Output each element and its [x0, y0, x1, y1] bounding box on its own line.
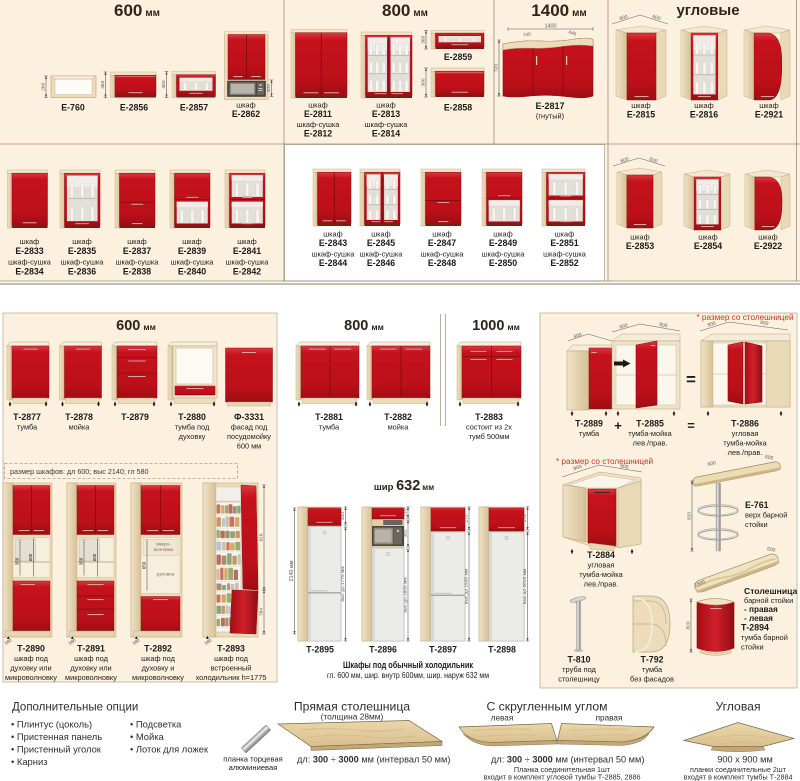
- svg-text:тумба: тумба: [319, 423, 340, 432]
- svg-text:лев./прав.: лев./прав.: [584, 580, 619, 589]
- svg-text:духовка: духовка: [157, 573, 175, 578]
- svg-text:Угловая: Угловая: [715, 700, 760, 714]
- svg-text:• Карниз: • Карниз: [11, 756, 48, 767]
- svg-text:шкаф под: шкаф под: [74, 654, 109, 663]
- svg-text:Е-2817: Е-2817: [535, 101, 564, 111]
- svg-text:С скругленным углом: С скругленным углом: [486, 700, 607, 714]
- svg-text:шкаф-сушка: шкаф-сушка: [116, 258, 160, 267]
- svg-text:Е-2847: Е-2847: [428, 238, 456, 248]
- svg-text:Т-2889: Т-2889: [575, 419, 603, 429]
- svg-text:Т-2898: Т-2898: [488, 645, 516, 655]
- svg-text:тумба-мойка: тумба-мойка: [579, 570, 623, 579]
- svg-text:Т-2894: Т-2894: [741, 623, 769, 633]
- svg-text:Е-2922: Е-2922: [754, 241, 782, 251]
- svg-text:шкаф-сушка: шкаф-сушка: [61, 258, 105, 267]
- svg-text:тумба под: тумба под: [175, 423, 210, 432]
- svg-text:Е-2843: Е-2843: [319, 238, 347, 248]
- svg-text:2140 мм: 2140 мм: [289, 560, 295, 581]
- svg-text:Е-2839: Е-2839: [178, 246, 206, 256]
- svg-text:(толщина 28мм): (толщина 28мм): [321, 712, 384, 722]
- svg-text:- правая: - правая: [744, 605, 778, 614]
- svg-text:стойки: стойки: [741, 643, 764, 652]
- svg-text:шкаф: шкаф: [237, 237, 257, 246]
- svg-text:Т-2892: Т-2892: [144, 644, 172, 654]
- svg-text:тумба: тумба: [17, 423, 38, 432]
- svg-text:микро-: микро-: [156, 542, 171, 547]
- svg-text:Е-2834: Е-2834: [15, 267, 43, 277]
- svg-text:600: 600: [92, 553, 97, 561]
- svg-text:Е-761: Е-761: [745, 500, 769, 510]
- svg-text:без фасадов: без фасадов: [630, 675, 674, 684]
- svg-text:Е-2840: Е-2840: [178, 267, 206, 277]
- svg-text:столешницу: столешницу: [558, 675, 600, 684]
- svg-text:Е-760: Е-760: [61, 103, 85, 113]
- svg-text:350: 350: [15, 557, 20, 565]
- svg-text:шкаф: шкаф: [182, 237, 202, 246]
- svg-text:Е-2921: Е-2921: [755, 110, 783, 120]
- svg-text:• Пристенный уголок: • Пристенный уголок: [11, 744, 102, 755]
- svg-text:шкаф: шкаф: [72, 237, 92, 246]
- svg-text:Т-2893: Т-2893: [217, 644, 245, 654]
- svg-text:Е-2845: Е-2845: [367, 238, 395, 248]
- svg-text:360: 360: [421, 35, 427, 43]
- svg-text:Е-2857: Е-2857: [180, 103, 208, 113]
- svg-text:стойки: стойки: [745, 520, 768, 529]
- svg-text:угловая: угловая: [588, 561, 615, 570]
- svg-text:600: 600: [28, 553, 33, 561]
- svg-text:360: 360: [161, 80, 167, 88]
- svg-text:правая: правая: [596, 714, 623, 723]
- svg-text:входит в комплект угловой тумб: входит в комплект угловой тумбы Т-2885, …: [483, 773, 640, 781]
- svg-text:Ф-3331: Ф-3331: [234, 412, 264, 422]
- svg-text:650: 650: [142, 561, 147, 569]
- svg-text:духовку или: духовку или: [70, 664, 111, 673]
- svg-text:мойка: мойка: [388, 423, 410, 432]
- svg-text:Т-810: Т-810: [568, 655, 591, 665]
- svg-text:900 х 900 мм: 900 х 900 мм: [717, 755, 773, 765]
- svg-text:Е-2835: Е-2835: [68, 246, 96, 256]
- svg-text:916: 916: [259, 533, 265, 541]
- svg-text:Т-2881: Т-2881: [315, 412, 343, 422]
- svg-text:Т-2877: Т-2877: [13, 412, 41, 422]
- svg-text:микроволновку: микроволновку: [132, 673, 184, 682]
- svg-text:тумба барной: тумба барной: [741, 633, 788, 642]
- svg-text:тумба-мойка: тумба-мойка: [628, 429, 672, 438]
- svg-text:духовку и: духовку и: [142, 664, 175, 673]
- svg-text:Т-2885: Т-2885: [636, 419, 664, 429]
- svg-text:360: 360: [100, 80, 106, 88]
- svg-text:тумба-мойка: тумба-мойка: [723, 439, 767, 448]
- svg-text:выс до 1830 мм: выс до 1830 мм: [403, 577, 409, 612]
- svg-text:Дополнительные опции: Дополнительные опции: [12, 702, 138, 714]
- svg-text:Е-2833: Е-2833: [15, 246, 43, 256]
- svg-text:Е-2853: Е-2853: [626, 241, 654, 251]
- svg-text:духовку: духовку: [179, 432, 206, 441]
- svg-text:Е-2846: Е-2846: [367, 258, 395, 268]
- svg-text:Т-2896: Т-2896: [369, 645, 397, 655]
- svg-text:шкаф под: шкаф под: [214, 654, 249, 663]
- svg-text:фасад под: фасад под: [231, 423, 268, 432]
- svg-text:170: 170: [522, 514, 528, 522]
- svg-text:350: 350: [79, 557, 84, 565]
- svg-text:Шкафы под обычный холодильник: Шкафы под обычный холодильник: [343, 660, 473, 671]
- svg-text:Е-2838: Е-2838: [123, 267, 151, 277]
- svg-text:входят в комплект тумбы Т-2884: входят в комплект тумбы Т-2884: [684, 773, 793, 781]
- svg-text:720: 720: [494, 64, 500, 72]
- svg-text:920: 920: [687, 512, 693, 520]
- svg-text:Е-2859: Е-2859: [444, 52, 472, 62]
- svg-text:лев./прав.: лев./прав.: [633, 439, 668, 448]
- svg-text:600 мм: 600 мм: [237, 442, 262, 451]
- svg-text:тумба: тумба: [642, 665, 663, 674]
- svg-text:гл. 600 мм, шир. внутр 600м: гл. 600 мм, шир. внутр 600мм, шир. наруж…: [327, 671, 489, 680]
- svg-text:Е-2816: Е-2816: [690, 110, 718, 120]
- svg-text:Е-2841: Е-2841: [233, 246, 261, 256]
- svg-text:=: =: [687, 418, 695, 433]
- svg-text:Е-2842: Е-2842: [233, 267, 261, 277]
- svg-text:Е-2811: Е-2811: [304, 109, 332, 119]
- svg-text:+: +: [614, 418, 622, 433]
- svg-text:Т-2883: Т-2883: [475, 412, 503, 422]
- svg-text:левая: левая: [491, 714, 514, 723]
- svg-text:Е-2854: Е-2854: [694, 241, 722, 251]
- svg-text:Е-2856: Е-2856: [120, 103, 148, 113]
- svg-text:выс до 1775 мм: выс до 1775 мм: [340, 566, 346, 601]
- svg-text:тумба: тумба: [579, 429, 600, 438]
- svg-text:(гнутый): (гнутый): [536, 112, 564, 121]
- svg-text:• Плинтус (цоколь): • Плинтус (цоколь): [11, 719, 92, 730]
- svg-text:встроенный: встроенный: [211, 664, 252, 673]
- svg-text:Е-2852: Е-2852: [550, 258, 578, 268]
- svg-text:Е-2849: Е-2849: [489, 238, 517, 248]
- svg-text:труба под: труба под: [562, 665, 596, 674]
- svg-text:Т-2897: Т-2897: [429, 645, 457, 655]
- svg-text:холодильник h=1775: холодильник h=1775: [196, 673, 267, 682]
- svg-text:Т-2879: Т-2879: [121, 412, 149, 422]
- svg-text:Е-2848: Е-2848: [428, 258, 456, 268]
- svg-text:размер шкафов: дл 600; выс 2: размер шкафов: дл 600; выс 2140; гл 580: [10, 467, 149, 476]
- svg-text:дл: 300 ÷ 3000 мм (интервал 50: дл: 300 ÷ 3000 мм (интервал 50 мм): [297, 755, 450, 765]
- svg-text:740: 740: [522, 31, 531, 38]
- svg-text:шкаф под: шкаф под: [141, 654, 176, 663]
- svg-text:посудомойку: посудомойку: [227, 432, 271, 441]
- svg-text:выс до 1930 мм: выс до 1930 мм: [464, 569, 470, 604]
- svg-text:600: 600: [765, 454, 774, 461]
- svg-text:Столешница 1600: Столешница 1600: [744, 586, 800, 596]
- svg-text:шкаф под: шкаф под: [14, 654, 49, 663]
- svg-text:• Лоток для ложек: • Лоток для ложек: [130, 744, 209, 755]
- svg-text:шкаф-сушка: шкаф-сушка: [8, 258, 52, 267]
- svg-text:мойка: мойка: [69, 423, 91, 432]
- svg-text:Т-2880: Т-2880: [178, 412, 206, 422]
- svg-text:алюминиевая: алюминиевая: [229, 763, 278, 772]
- svg-text:Т-2884: Т-2884: [587, 550, 615, 560]
- svg-text:Е-2812: Е-2812: [304, 128, 332, 138]
- svg-text:духовку или: духовку или: [10, 664, 51, 673]
- svg-text:шкаф-сушка: шкаф-сушка: [226, 258, 270, 267]
- svg-text:Т-2882: Т-2882: [384, 412, 412, 422]
- svg-text:шкаф: шкаф: [127, 237, 147, 246]
- svg-text:верх барной: верх барной: [745, 511, 787, 520]
- svg-text:Т-2886: Т-2886: [731, 419, 759, 429]
- svg-text:210: 210: [403, 508, 409, 516]
- svg-text:300: 300: [421, 78, 427, 86]
- svg-text:Е-2858: Е-2858: [444, 103, 472, 113]
- svg-text:угловая: угловая: [732, 429, 759, 438]
- svg-text:состоит из 2х: состоит из 2х: [466, 423, 512, 432]
- svg-text:микроволновку: микроволновку: [5, 673, 57, 682]
- svg-text:820: 820: [686, 621, 692, 629]
- svg-text:1400: 1400: [545, 23, 557, 29]
- svg-text:Т-792: Т-792: [641, 655, 664, 665]
- svg-text:* размер со столешницей: * размер со столешницей: [556, 457, 653, 466]
- svg-text:Е-2837: Е-2837: [123, 246, 151, 256]
- svg-text:Т-2891: Т-2891: [77, 644, 105, 654]
- svg-text:Т-2895: Т-2895: [306, 645, 334, 655]
- svg-text:Т-2878: Т-2878: [65, 412, 93, 422]
- svg-text:Е-2850: Е-2850: [489, 258, 517, 268]
- svg-text:угловые: угловые: [676, 2, 739, 19]
- svg-text:Е-2844: Е-2844: [319, 258, 347, 268]
- svg-text:Е-2862: Е-2862: [232, 109, 260, 119]
- svg-text:300: 300: [266, 84, 272, 92]
- svg-text:450: 450: [340, 512, 346, 520]
- svg-text:Е-2813: Е-2813: [372, 109, 400, 119]
- svg-text:Т-2890: Т-2890: [17, 644, 45, 654]
- svg-text:лев./прав.: лев./прав.: [728, 448, 763, 457]
- svg-text:выс до 2015 мм: выс до 2015 мм: [522, 569, 528, 604]
- svg-text:260: 260: [41, 82, 47, 90]
- svg-text:784: 784: [259, 608, 265, 616]
- svg-text:дл: 300 ÷ 3000 мм (интервал 50: дл: 300 ÷ 3000 мм (интервал 50 мм): [491, 755, 644, 765]
- svg-text:Е-2836: Е-2836: [68, 267, 96, 277]
- svg-text:• Подсветка: • Подсветка: [130, 719, 182, 730]
- svg-text:шкаф-сушка: шкаф-сушка: [171, 258, 215, 267]
- svg-text:волновка: волновка: [154, 547, 174, 552]
- svg-text:тумб 500мм: тумб 500мм: [469, 432, 510, 441]
- svg-text:шкаф: шкаф: [20, 237, 40, 246]
- svg-text:392: 392: [403, 529, 409, 537]
- svg-text:• Мойка: • Мойка: [130, 731, 165, 742]
- svg-text:Е-2814: Е-2814: [372, 128, 400, 138]
- svg-text:микроволновку: микроволновку: [65, 673, 117, 682]
- svg-text:барной стойки: барной стойки: [744, 596, 793, 605]
- svg-text:• Пристенная панель: • Пристенная панель: [11, 731, 102, 742]
- svg-text:=: =: [686, 370, 696, 389]
- svg-text:210: 210: [464, 514, 470, 522]
- svg-text:Е-2815: Е-2815: [627, 110, 655, 120]
- svg-text:Е-2851: Е-2851: [550, 238, 578, 248]
